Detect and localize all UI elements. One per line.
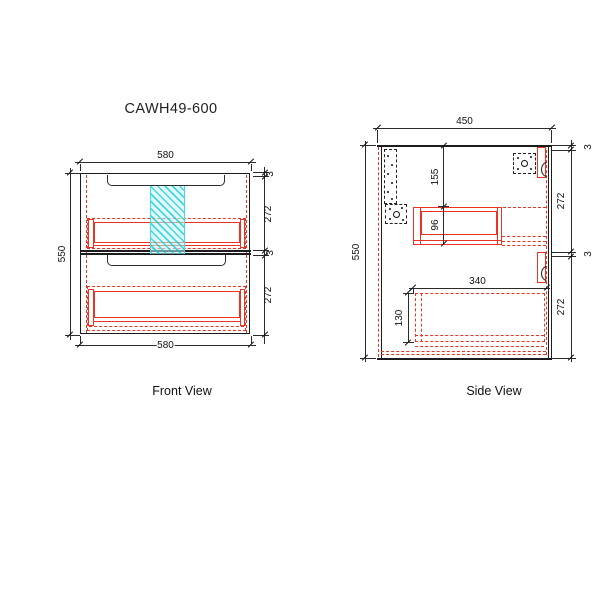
extension-line (551, 130, 552, 143)
extension-line (253, 335, 269, 336)
side-drawer2-height-dim-line (408, 293, 409, 343)
screw-hole-dot (402, 219, 404, 221)
side-drawer1-left-cap (420, 207, 421, 245)
side-drawer2-length-dim-line (409, 288, 550, 289)
side-depth-dim-line (373, 128, 556, 129)
screw-hole-dot (389, 208, 391, 210)
screw-hole-dot (530, 168, 532, 170)
screw-hole-dot (517, 157, 519, 159)
wall-bracket-square-left (385, 204, 407, 225)
front-top-section-label: 272 (264, 204, 274, 223)
side-drawer2-length-label: 340 (468, 277, 487, 287)
front-view-label: Front View (152, 384, 212, 398)
side-height-dim-line (365, 141, 366, 362)
side-view-label: Side View (466, 384, 521, 398)
side-bottom-hidden-line (381, 354, 546, 355)
side-gap-mid-label: 3 (584, 250, 594, 258)
side-drawer2-hidden-line (415, 346, 544, 347)
extension-line (377, 130, 378, 143)
front-drawer2-box (94, 291, 241, 319)
front-drawer2-hidden-line (89, 326, 244, 327)
wall-bracket-vertical (384, 149, 398, 204)
screw-hole-dot (387, 155, 389, 157)
front-top-width-label: 580 (156, 151, 175, 161)
side-drawer1-right-cap (497, 207, 498, 245)
front-drawer1-handle-recess (107, 175, 225, 186)
screw-hole-dot (517, 168, 519, 170)
side-bottom-section-label: 272 (557, 297, 567, 316)
front-tap-cutout-hatch (150, 186, 185, 254)
side-top-section-label: 272 (557, 191, 567, 210)
front-height-dim-line (70, 168, 71, 340)
side-front-hidden-line (546, 150, 547, 355)
extension-line (552, 150, 576, 151)
front-top-dim-line (75, 162, 256, 163)
bracket-center-hole (521, 160, 528, 167)
side-back-hidden-line (378, 147, 379, 357)
front-drawer2-handle-recess (107, 255, 226, 266)
side-depth-label: 450 (455, 117, 474, 127)
front-drawer2-right-cap (240, 289, 246, 326)
extension-line (251, 336, 252, 344)
extension-line (251, 164, 252, 171)
side-top-panel-line (377, 145, 552, 147)
technical-drawing-canvas: CAWH49-600 580 (0, 0, 600, 600)
extension-line (360, 358, 376, 359)
extension-line (552, 358, 576, 359)
extension-line (65, 335, 80, 336)
extension-line (360, 145, 376, 146)
screw-hole-dot (389, 218, 391, 220)
side-inner-dim-line (443, 146, 444, 244)
extension-line (80, 336, 81, 344)
side-gap-top-label: 3 (584, 143, 594, 151)
side-top-clearance-label: 155 (431, 167, 441, 186)
front-drawer2-bottom-line (94, 321, 240, 322)
bracket-center-hole (393, 211, 400, 218)
drawing-title: CAWH49-600 (125, 101, 218, 117)
side-drawer2-height-label: 130 (395, 308, 405, 327)
front-height-label: 550 (58, 245, 68, 264)
extension-line (438, 206, 449, 207)
extension-line (403, 293, 414, 294)
side-height-label: 550 (352, 242, 362, 261)
screw-hole-dot (391, 182, 393, 184)
screw-hole-dot (401, 207, 403, 209)
extension-line (403, 342, 414, 343)
side-drawer1-height-label: 96 (431, 218, 441, 231)
screw-hole-dot (530, 156, 532, 158)
side-drawer1-rail-line (414, 240, 502, 241)
side-drawer2-rail-line (415, 335, 544, 336)
extension-line (80, 164, 81, 171)
screw-hole-dot (387, 191, 389, 193)
front-gap-mid-label: 3 (266, 249, 276, 257)
front-drawer1-right-cap (240, 219, 246, 248)
front-bottom-section-label: 272 (264, 286, 274, 305)
side-bottom-panel-line (377, 358, 552, 360)
side-bottom-hidden-line (381, 351, 546, 352)
screw-hole-dot (391, 164, 393, 166)
side-drawer1-hidden-line (502, 241, 546, 242)
side-drawer1-hidden-line (502, 236, 546, 237)
wall-bracket-square-right (513, 153, 536, 174)
screw-hole-dot (391, 198, 393, 200)
side-drawer1-hidden-line (502, 245, 546, 246)
screw-hole-dot (387, 173, 389, 175)
side-back-panel-line (381, 145, 382, 359)
extension-line (65, 173, 80, 174)
side-front-panel-line (548, 145, 549, 360)
front-gap-top-label: 3 (266, 170, 276, 178)
front-bottom-width-label: 580 (156, 341, 175, 351)
